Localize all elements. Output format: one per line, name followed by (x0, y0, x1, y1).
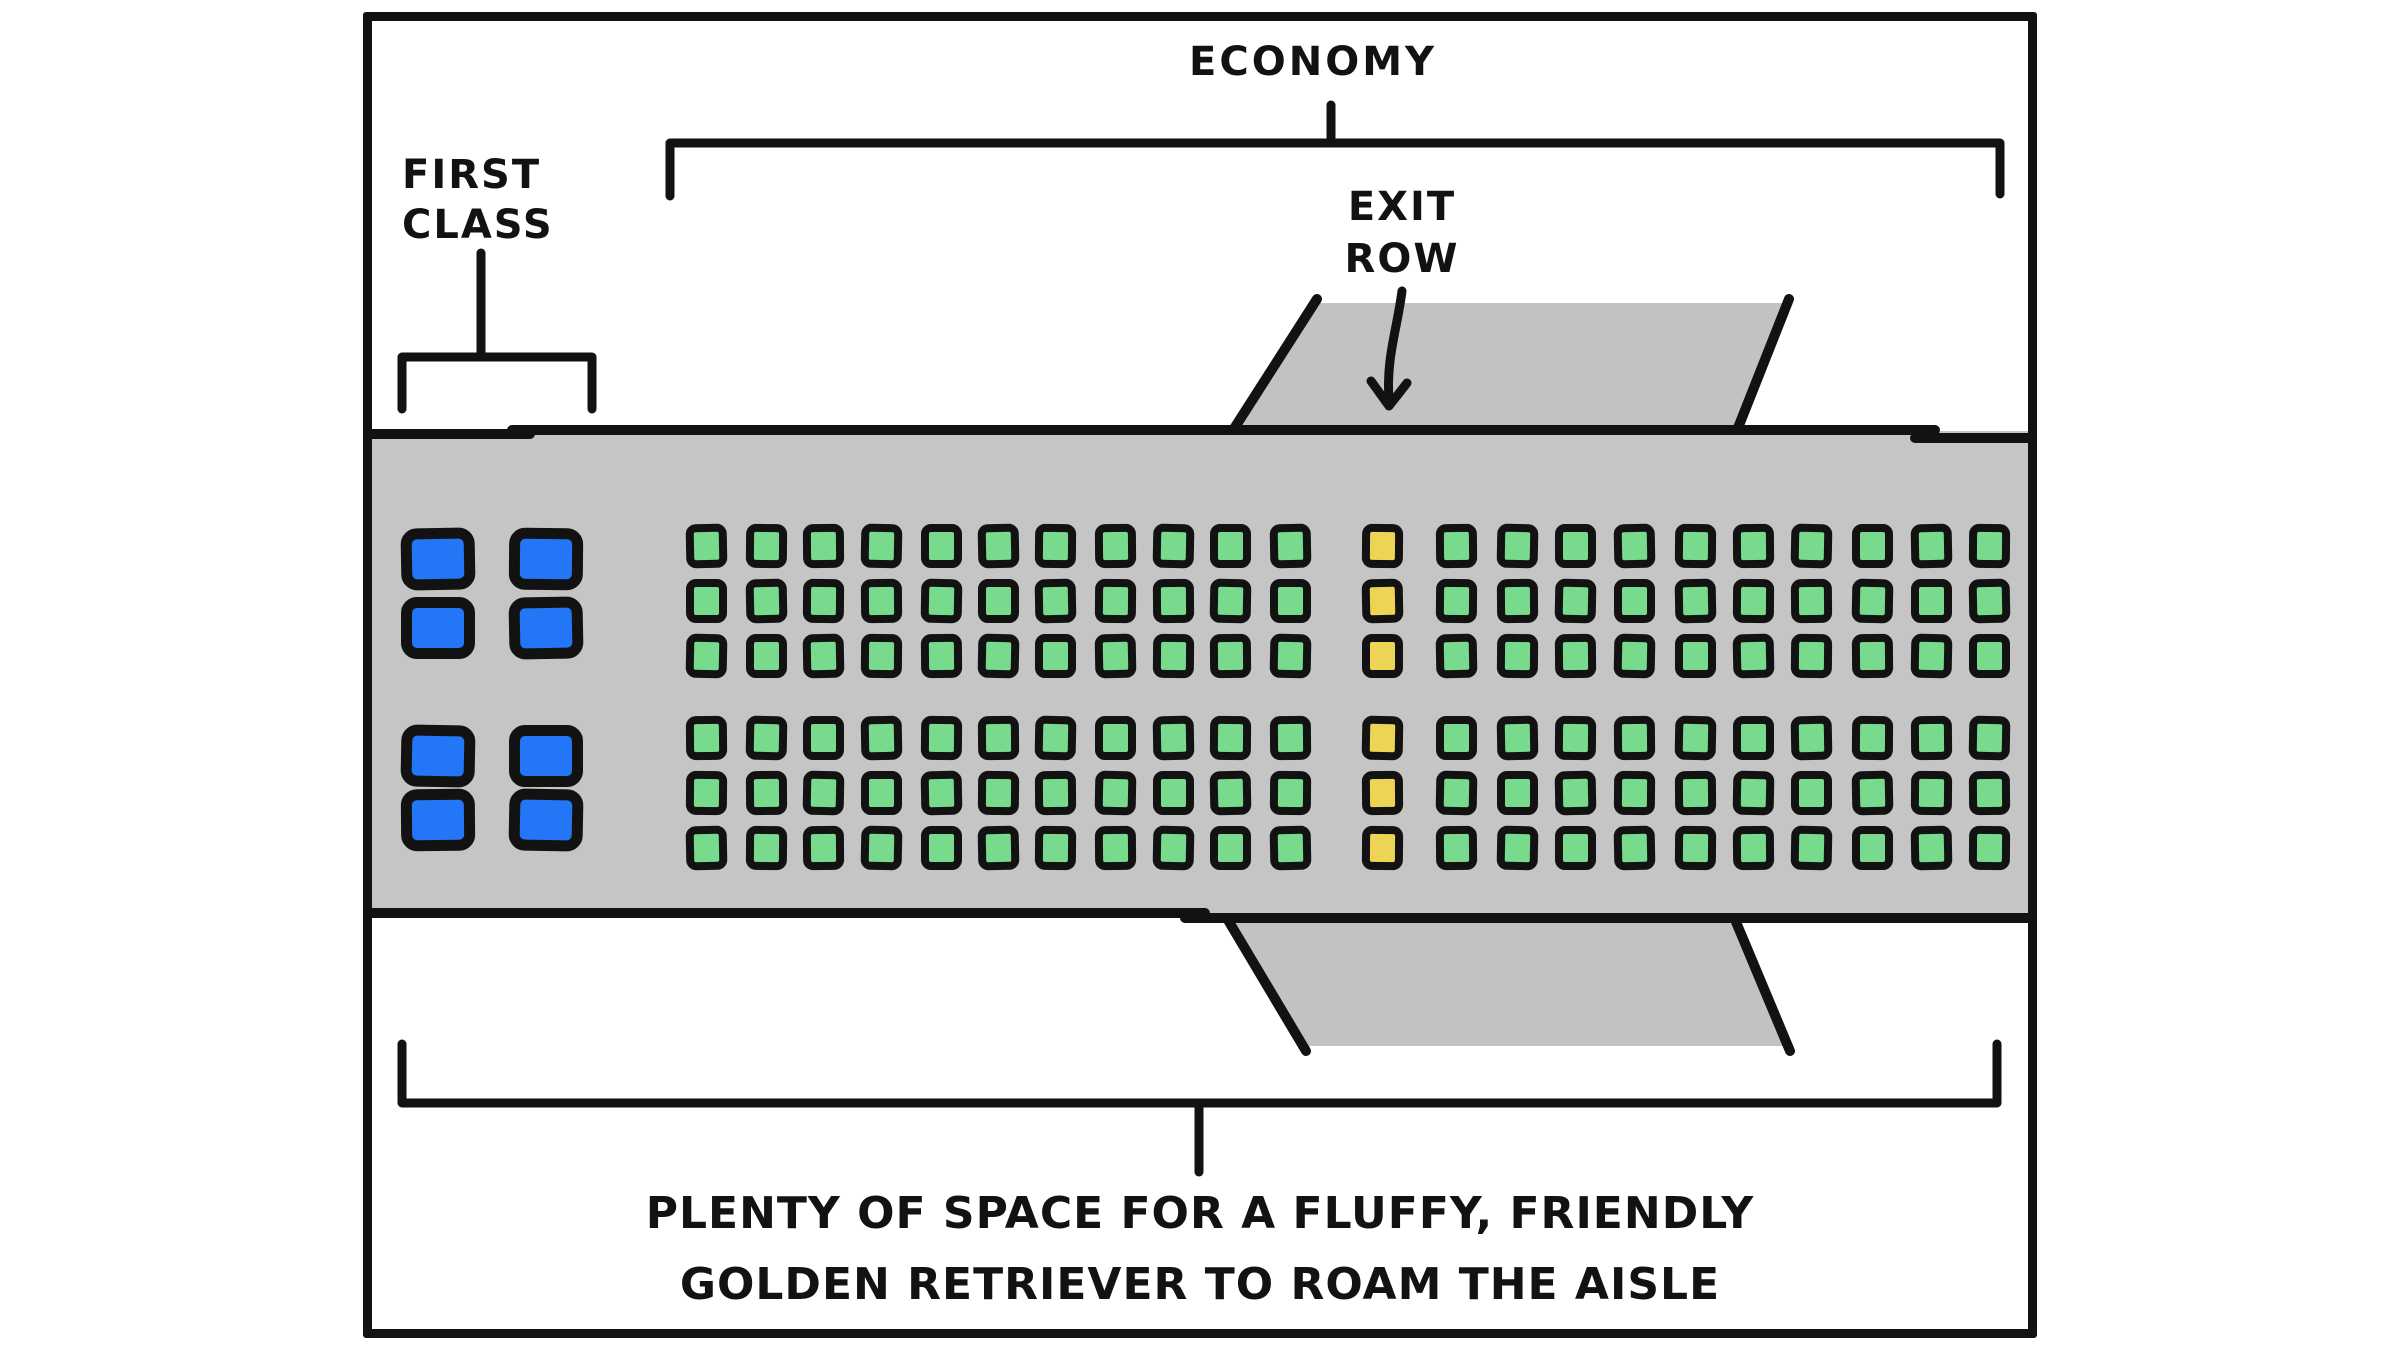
exit-row-label-line2: ROW (1345, 236, 1460, 282)
caption: PLENTY OF SPACE FOR A FLUFFY, FRIENDLYGO… (646, 1178, 1755, 1320)
exit-row-label: EXITROW (1345, 181, 1460, 285)
comic-panel: ECONOMY FIRSTCLASS EXITROW PLENTY OF SPA… (0, 0, 2400, 1350)
economy-bracket (670, 143, 2000, 196)
first-class-label: FIRSTCLASS (402, 150, 554, 250)
annotation-layer (0, 0, 2400, 1350)
caption-bracket (402, 1044, 1997, 1103)
first-class-label-line2: CLASS (402, 202, 554, 248)
caption-line2: GOLDEN RETRIEVER TO ROAM THE AISLE (680, 1259, 1720, 1310)
caption-line1: PLENTY OF SPACE FOR A FLUFFY, FRIENDLY (646, 1188, 1755, 1239)
exit-row-label-line1: EXIT (1348, 184, 1456, 230)
exit-row-arrow (1388, 291, 1402, 399)
first-class-label-line1: FIRST (402, 152, 541, 198)
first-class-bracket (402, 357, 592, 409)
economy-label: ECONOMY (1189, 42, 1437, 82)
